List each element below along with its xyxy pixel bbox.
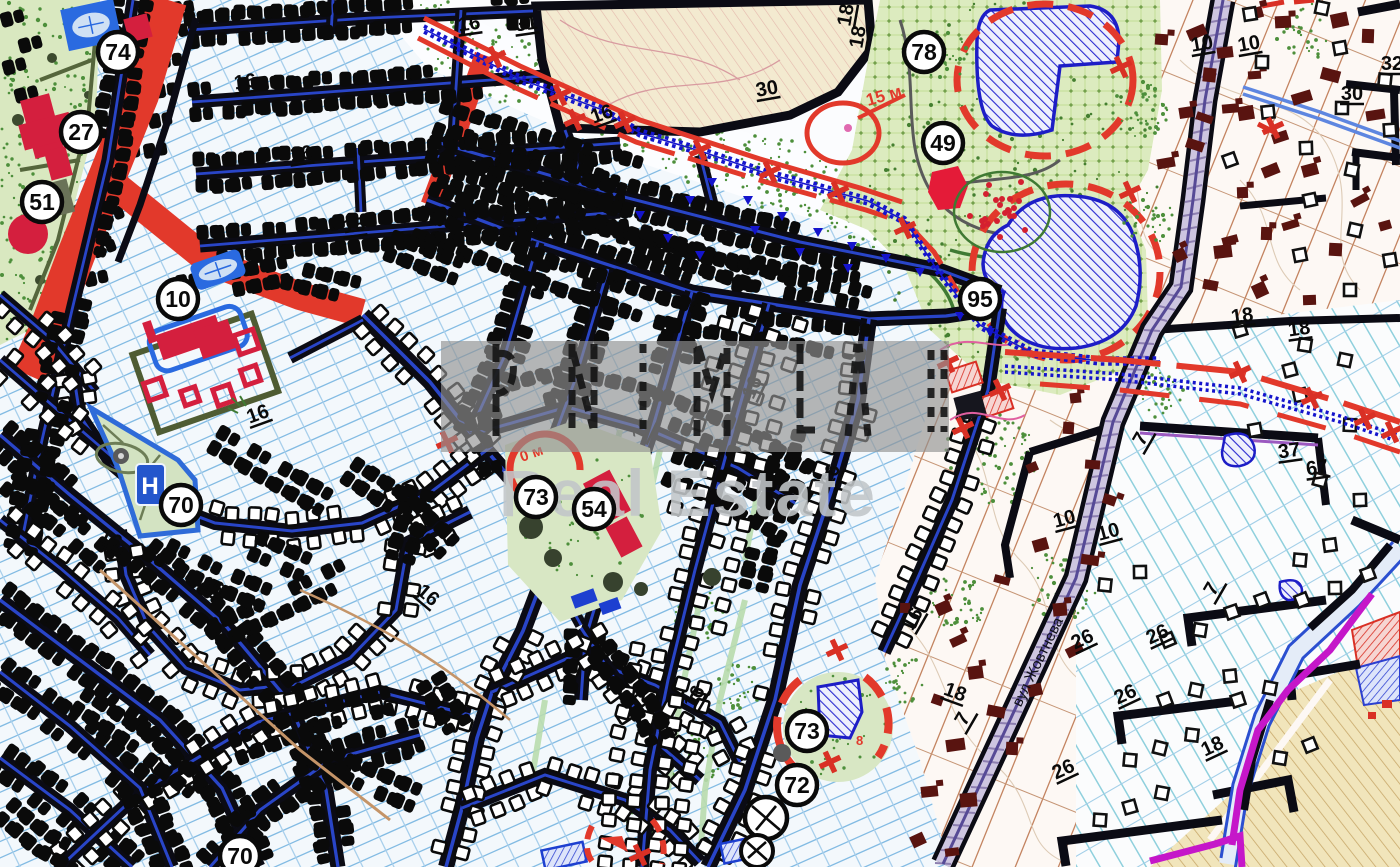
svg-text:H: H [141, 473, 158, 500]
svg-text:74: 74 [105, 39, 131, 65]
svg-text:30: 30 [1341, 83, 1363, 105]
svg-text:51: 51 [29, 189, 55, 215]
svg-text:70: 70 [227, 843, 253, 867]
svg-text:8: 8 [856, 733, 863, 748]
svg-text:72: 72 [784, 772, 810, 798]
svg-text:73: 73 [523, 484, 549, 510]
svg-text:70: 70 [168, 492, 194, 518]
svg-text:95: 95 [967, 286, 993, 312]
svg-text:32: 32 [1381, 53, 1400, 75]
svg-text:54: 54 [581, 496, 607, 522]
svg-text:73: 73 [794, 718, 820, 744]
svg-text:27: 27 [68, 119, 94, 145]
svg-text:10: 10 [165, 286, 191, 312]
svg-text:49: 49 [930, 130, 956, 156]
svg-text:78: 78 [911, 39, 937, 65]
